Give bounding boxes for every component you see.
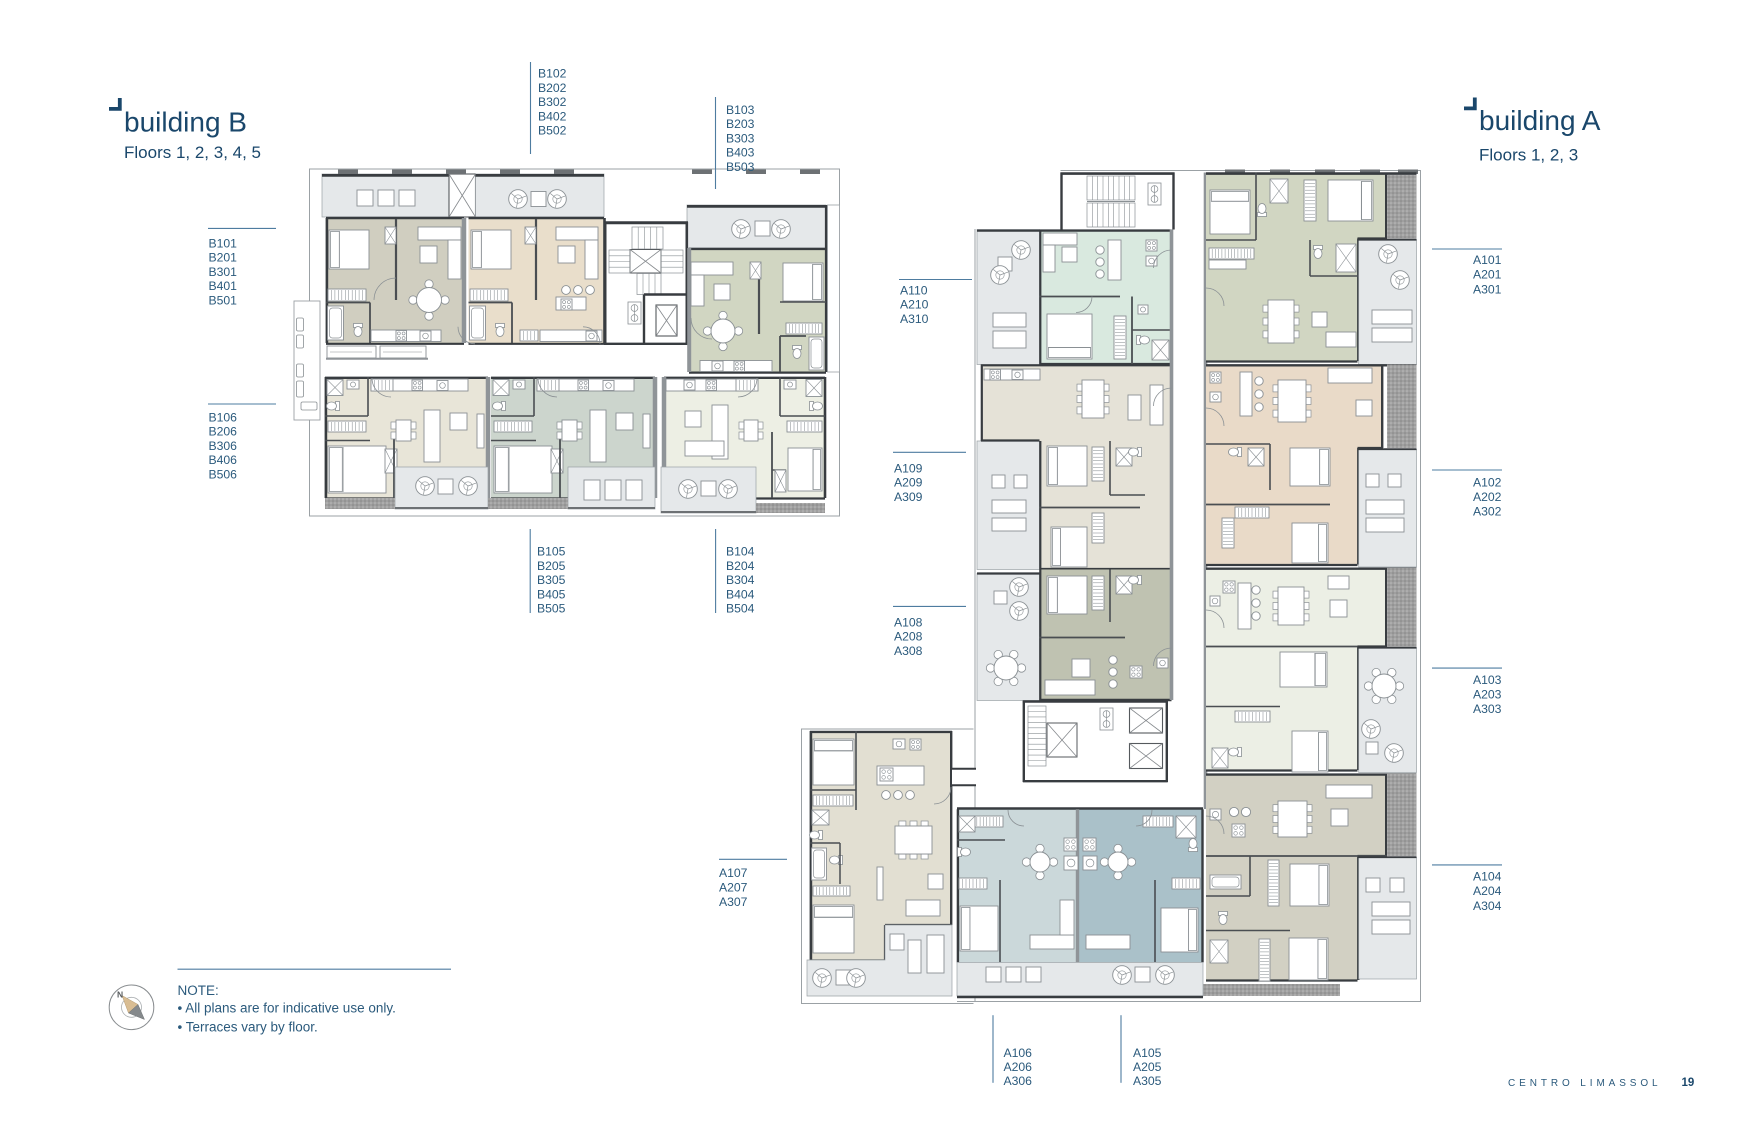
svg-text:N: N — [117, 990, 123, 1000]
svg-text:B502: B502 — [538, 124, 567, 138]
svg-text:B501: B501 — [209, 294, 238, 308]
svg-text:B106: B106 — [209, 410, 238, 424]
svg-text:A107: A107 — [719, 866, 748, 880]
svg-text:• All plans are for indicative: • All plans are for indicative use only. — [178, 1001, 396, 1016]
svg-text:B504: B504 — [726, 602, 755, 616]
svg-text:NOTE:: NOTE: — [178, 983, 219, 998]
svg-text:A304: A304 — [1473, 899, 1502, 913]
svg-text:A310: A310 — [900, 312, 929, 326]
svg-text:A209: A209 — [894, 476, 923, 490]
svg-text:A201: A201 — [1473, 268, 1502, 282]
svg-text:B403: B403 — [726, 146, 755, 160]
svg-text:B205: B205 — [537, 559, 566, 573]
svg-text:B405: B405 — [537, 587, 566, 601]
svg-text:B503: B503 — [726, 160, 755, 174]
svg-text:B102: B102 — [538, 67, 567, 81]
svg-text:Floors 1, 2, 3: Floors 1, 2, 3 — [1479, 146, 1578, 165]
svg-text:19: 19 — [1682, 1077, 1695, 1089]
svg-text:B402: B402 — [538, 109, 567, 123]
svg-text:building A: building A — [1479, 105, 1601, 136]
svg-text:A101: A101 — [1473, 253, 1502, 267]
svg-text:B506: B506 — [209, 468, 238, 482]
svg-text:A302: A302 — [1473, 505, 1502, 519]
svg-text:A106: A106 — [1004, 1046, 1033, 1060]
svg-text:B204: B204 — [726, 559, 755, 573]
svg-text:B105: B105 — [537, 545, 566, 559]
svg-text:B304: B304 — [726, 573, 755, 587]
svg-text:A104: A104 — [1473, 870, 1502, 884]
svg-text:B301: B301 — [209, 265, 238, 279]
svg-text:• Terraces vary by floor.: • Terraces vary by floor. — [178, 1020, 318, 1035]
svg-text:A103: A103 — [1473, 673, 1502, 687]
svg-text:A109: A109 — [894, 461, 923, 475]
svg-text:B406: B406 — [209, 453, 238, 467]
svg-text:A210: A210 — [900, 298, 929, 312]
svg-text:A102: A102 — [1473, 475, 1502, 489]
svg-text:B404: B404 — [726, 587, 755, 601]
svg-text:A208: A208 — [894, 630, 923, 644]
svg-text:B104: B104 — [726, 545, 755, 559]
svg-text:B203: B203 — [726, 117, 755, 131]
svg-text:A205: A205 — [1133, 1060, 1162, 1074]
svg-text:A308: A308 — [894, 644, 923, 658]
svg-text:B505: B505 — [537, 602, 566, 616]
svg-text:B103: B103 — [726, 103, 755, 117]
svg-text:B306: B306 — [209, 439, 238, 453]
svg-text:A110: A110 — [900, 283, 928, 297]
svg-text:A204: A204 — [1473, 884, 1502, 898]
svg-text:B303: B303 — [726, 131, 755, 145]
svg-text:B305: B305 — [537, 573, 566, 587]
svg-text:A305: A305 — [1133, 1074, 1162, 1088]
svg-text:A309: A309 — [894, 490, 923, 504]
svg-text:A301: A301 — [1473, 282, 1502, 296]
svg-text:A105: A105 — [1133, 1046, 1162, 1060]
svg-text:A306: A306 — [1004, 1074, 1033, 1088]
svg-text:building B: building B — [124, 107, 247, 138]
svg-text:CENTRO LIMASSOL: CENTRO LIMASSOL — [1508, 1078, 1662, 1089]
svg-text:A207: A207 — [719, 880, 748, 894]
svg-text:A206: A206 — [1004, 1060, 1033, 1074]
svg-text:A303: A303 — [1473, 702, 1502, 716]
svg-text:A307: A307 — [719, 895, 748, 909]
svg-text:B206: B206 — [209, 425, 238, 439]
svg-text:B201: B201 — [209, 251, 238, 265]
svg-text:A108: A108 — [894, 615, 923, 629]
svg-text:B202: B202 — [538, 81, 567, 95]
svg-text:B401: B401 — [209, 279, 238, 293]
svg-text:B302: B302 — [538, 95, 567, 109]
svg-text:Floors 1, 2, 3, 4, 5: Floors 1, 2, 3, 4, 5 — [124, 143, 261, 162]
svg-text:A202: A202 — [1473, 490, 1502, 504]
svg-text:B101: B101 — [209, 236, 238, 250]
svg-text:A203: A203 — [1473, 687, 1502, 701]
